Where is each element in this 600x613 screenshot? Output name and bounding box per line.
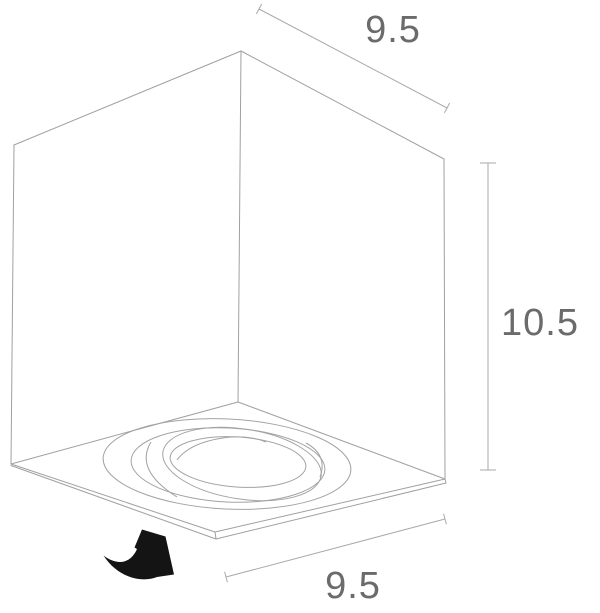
bottom-face <box>11 402 446 539</box>
dimension-top-tick-start <box>256 4 261 14</box>
cube-top-right-edge <box>241 51 444 159</box>
cube-top-left-edge <box>14 51 241 145</box>
bottom-face-outline <box>11 402 445 532</box>
drawing-svg: 9.5 10.5 9.5 <box>0 0 600 613</box>
cube-left-vertical-edge <box>11 145 14 464</box>
rotate-arrow-icon <box>104 530 175 580</box>
spot-bezel-arc <box>177 437 266 460</box>
dimension-bottom-label: 9.5 <box>325 565 381 607</box>
bottom-plate-corner-edge-right <box>445 479 446 483</box>
dimension-side-label: 10.5 <box>501 302 579 344</box>
cube-front-vertical-edge <box>238 51 241 402</box>
dimension-top-tick-end <box>444 103 449 113</box>
gimbal-spotlight <box>101 413 353 515</box>
bottom-plate-corner-edge-near <box>215 532 216 539</box>
dimension-side-height: 10.5 <box>480 163 579 470</box>
dimension-top-label: 9.5 <box>365 9 421 51</box>
dimension-top-width: 9.5 <box>256 4 449 113</box>
dimension-drawing: 9.5 10.5 9.5 <box>0 0 600 613</box>
dimension-bottom-depth: 9.5 <box>225 514 447 607</box>
spot-face <box>168 432 307 491</box>
trim-ring-inner <box>129 423 326 506</box>
cube-right-vertical-edge <box>444 159 445 479</box>
cube-outline <box>11 51 445 479</box>
